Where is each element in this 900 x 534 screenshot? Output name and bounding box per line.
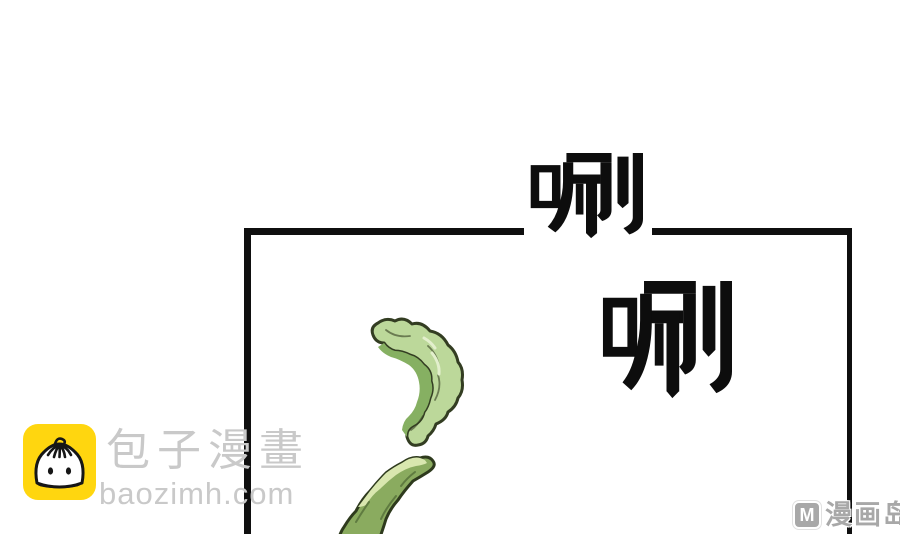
manhuadao-m-badge: M (793, 501, 821, 529)
comic-page: 包子漫畫 baozimh.com M 漫画岛 唰 唰 (0, 0, 900, 534)
vegetable-crescent-art (366, 317, 471, 449)
vegetable-pod-art (328, 455, 438, 534)
watermark-brand-text: 包子漫畫 (106, 429, 310, 473)
sfx-shua-outer-text: 唰 (524, 148, 525, 149)
watermark-manhuadao: M 漫画岛 (793, 501, 900, 529)
sfx-shua-inner-glyph (601, 281, 732, 402)
bao-bun-icon (23, 424, 96, 500)
sfx-shua-inner: 唰 (601, 281, 732, 402)
panel-border-right (847, 228, 852, 534)
sfx-shua-outer: 唰 (524, 148, 652, 248)
watermark-domain-text: baozimh.com (99, 478, 294, 509)
sfx-shua-outer-glyph (529, 153, 643, 241)
manhuadao-title-text: 漫画岛 (825, 502, 900, 529)
